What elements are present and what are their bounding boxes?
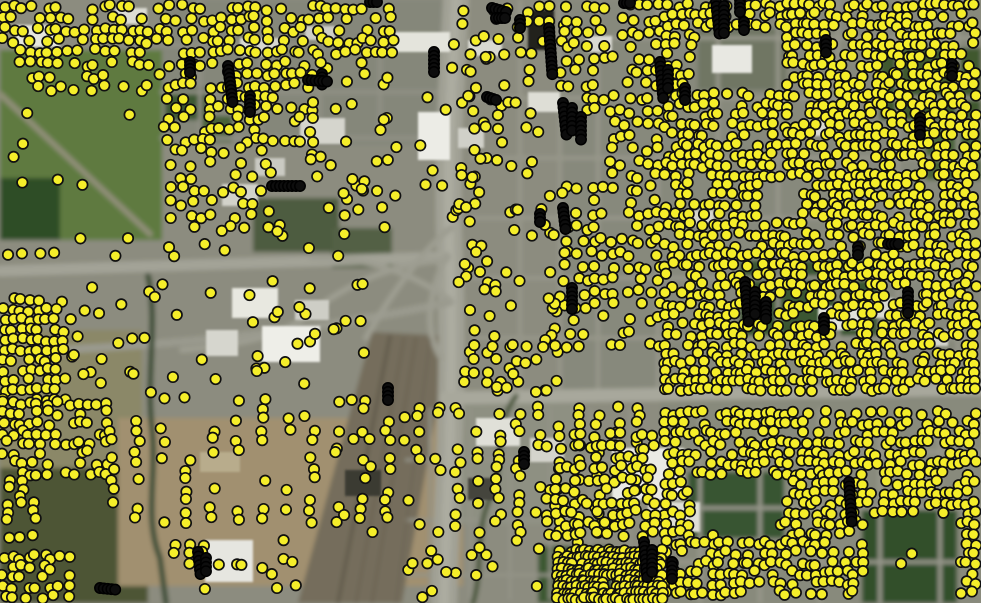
map-marker[interactable] [960,318,970,328]
map-marker[interactable] [101,405,111,415]
map-marker[interactable] [312,171,322,181]
map-marker[interactable] [721,161,731,171]
map-marker[interactable] [917,410,927,420]
map-marker[interactable] [832,149,842,159]
map-marker[interactable] [633,238,643,248]
map-marker[interactable] [685,506,695,516]
map-marker[interactable] [926,10,936,20]
map-marker[interactable] [331,104,341,114]
map-marker[interactable] [649,498,659,508]
map-marker[interactable] [525,108,535,118]
map-marker[interactable] [42,36,52,46]
map-marker[interactable] [667,111,677,121]
map-marker[interactable] [495,436,505,446]
map-marker[interactable] [697,406,707,416]
map-marker[interactable] [917,487,927,497]
map-marker[interactable] [886,435,896,445]
map-marker[interactable] [684,456,694,466]
map-marker[interactable] [781,268,791,278]
map-marker[interactable] [545,267,555,277]
map-marker[interactable] [599,41,609,51]
map-marker[interactable] [124,110,134,120]
map-marker[interactable] [56,81,66,91]
map-marker[interactable] [487,561,497,571]
map-marker[interactable] [562,16,572,26]
map-marker[interactable] [574,341,584,351]
map-marker[interactable] [597,250,607,260]
map-marker[interactable] [86,86,96,96]
map-marker[interactable] [938,12,948,22]
map-marker[interactable] [632,117,642,127]
map-marker[interactable] [499,80,509,90]
map-marker[interactable] [589,54,599,64]
map-marker[interactable] [118,81,128,91]
map-marker[interactable] [223,44,233,54]
map-marker[interactable] [131,426,141,436]
map-marker[interactable] [721,230,731,240]
map-marker[interactable] [358,403,368,413]
map-marker[interactable] [559,259,569,269]
map-marker[interactable] [359,69,369,79]
map-marker[interactable] [923,190,933,200]
map-marker[interactable] [908,80,918,90]
map-marker[interactable] [272,226,282,236]
map-marker[interactable] [690,120,700,130]
map-marker[interactable] [683,340,693,350]
map-marker[interactable] [755,385,765,395]
map-marker[interactable] [315,152,325,162]
map-marker[interactable] [380,425,390,435]
map-marker[interactable] [820,537,830,547]
map-marker[interactable] [497,137,507,147]
map-marker[interactable] [574,440,584,450]
collapsed-marker-stack[interactable] [295,181,305,191]
map-marker[interactable] [795,158,805,168]
map-marker[interactable] [261,59,271,69]
map-marker[interactable] [601,483,611,493]
map-marker[interactable] [686,298,696,308]
map-marker[interactable] [353,204,363,214]
map-marker[interactable] [637,298,647,308]
map-marker[interactable] [207,195,217,205]
map-marker[interactable] [544,1,554,11]
map-marker[interactable] [624,108,634,118]
map-marker[interactable] [247,171,257,181]
map-marker[interactable] [357,184,367,194]
map-marker[interactable] [970,506,980,516]
map-marker[interactable] [554,431,564,441]
map-marker[interactable] [817,141,827,151]
map-marker[interactable] [308,113,318,123]
map-marker[interactable] [433,554,443,564]
map-marker[interactable] [575,429,585,439]
map-marker[interactable] [178,182,188,192]
map-marker[interactable] [427,586,437,596]
map-marker[interactable] [686,40,696,50]
map-marker[interactable] [484,311,494,321]
map-marker[interactable] [142,80,152,90]
map-marker[interactable] [52,58,62,68]
map-marker[interactable] [430,454,440,464]
map-marker[interactable] [727,248,737,258]
map-marker[interactable] [625,314,635,324]
map-marker[interactable] [598,311,608,321]
map-marker[interactable] [69,350,79,360]
map-marker[interactable] [69,469,79,479]
map-marker[interactable] [971,281,981,291]
map-marker[interactable] [810,530,820,540]
collapsed-marker-stack[interactable] [821,47,831,57]
map-marker[interactable] [677,318,687,328]
map-marker[interactable] [15,45,25,55]
map-marker[interactable] [633,30,643,40]
map-marker[interactable] [465,305,475,315]
map-marker[interactable] [390,190,400,200]
map-marker[interactable] [971,238,981,248]
map-marker[interactable] [236,560,246,570]
map-marker[interactable] [835,120,845,130]
map-marker[interactable] [0,33,7,43]
map-marker[interactable] [968,79,978,89]
map-marker[interactable] [433,527,443,537]
map-marker[interactable] [871,249,881,259]
map-marker[interactable] [166,182,176,192]
map-marker[interactable] [106,434,116,444]
map-marker[interactable] [952,268,962,278]
map-marker[interactable] [141,38,151,48]
map-marker[interactable] [109,484,119,494]
map-marker[interactable] [258,412,268,422]
map-marker[interactable] [347,395,357,405]
map-marker[interactable] [971,456,981,466]
map-marker[interactable] [249,22,259,32]
map-marker[interactable] [918,357,928,367]
map-marker[interactable] [845,356,855,366]
map-marker[interactable] [738,108,748,118]
map-marker[interactable] [968,0,978,10]
map-marker[interactable] [480,121,490,131]
map-marker[interactable] [768,426,778,436]
map-marker[interactable] [378,37,388,47]
map-marker[interactable] [588,80,598,90]
map-marker[interactable] [697,220,707,230]
map-marker[interactable] [624,264,634,274]
collapsed-marker-stack[interactable] [853,250,863,260]
map-marker[interactable] [31,513,41,523]
collapsed-marker-stack[interactable] [663,83,673,93]
map-marker[interactable] [487,341,497,351]
map-marker[interactable] [471,570,481,580]
map-marker[interactable] [750,201,760,211]
map-marker[interactable] [490,516,500,526]
map-marker[interactable] [386,12,396,22]
map-marker[interactable] [642,93,652,103]
map-marker[interactable] [27,457,37,467]
map-marker[interactable] [494,493,504,503]
map-marker[interactable] [908,1,918,11]
map-marker[interactable] [207,58,217,68]
map-marker[interactable] [65,552,75,562]
map-marker[interactable] [939,331,949,341]
map-marker[interactable] [682,486,692,496]
map-marker[interactable] [340,316,350,326]
map-marker[interactable] [234,445,244,455]
map-marker[interactable] [473,476,483,486]
map-marker[interactable] [570,475,580,485]
map-marker[interactable] [586,246,596,256]
map-marker[interactable] [160,437,170,447]
map-marker[interactable] [236,187,246,197]
map-marker[interactable] [179,112,189,122]
map-marker[interactable] [377,47,387,57]
map-marker[interactable] [98,70,108,80]
map-marker[interactable] [347,99,357,109]
map-marker[interactable] [531,354,541,364]
map-marker[interactable] [131,457,141,467]
map-marker[interactable] [538,342,548,352]
map-marker[interactable] [862,497,872,507]
map-marker[interactable] [260,476,270,486]
map-marker[interactable] [924,318,934,328]
map-marker[interactable] [588,65,598,75]
map-marker[interactable] [259,112,269,122]
map-marker[interactable] [455,493,465,503]
map-marker[interactable] [260,394,270,404]
map-marker[interactable] [4,533,14,543]
map-marker[interactable] [128,369,138,379]
map-marker[interactable] [50,2,60,12]
map-marker[interactable] [615,441,625,451]
map-marker[interactable] [268,136,278,146]
map-marker[interactable] [731,200,741,210]
map-marker[interactable] [854,188,864,198]
map-marker[interactable] [599,95,609,105]
map-marker[interactable] [14,532,24,542]
map-marker[interactable] [629,485,639,495]
map-marker[interactable] [82,445,92,455]
collapsed-marker-stack[interactable] [567,304,577,314]
map-marker[interactable] [652,142,662,152]
collapsed-marker-stack[interactable] [322,76,332,86]
map-marker[interactable] [833,566,843,576]
map-marker[interactable] [52,47,62,57]
map-marker[interactable] [489,331,499,341]
map-marker[interactable] [105,0,115,10]
map-marker[interactable] [923,212,933,222]
map-marker[interactable] [825,158,835,168]
collapsed-marker-stack[interactable] [947,71,957,81]
map-marker[interactable] [24,354,34,364]
map-marker[interactable] [492,155,502,165]
map-marker[interactable] [720,546,730,556]
collapsed-marker-stack[interactable] [625,0,635,8]
map-marker[interactable] [772,469,782,479]
map-marker[interactable] [836,99,846,109]
map-marker[interactable] [133,474,143,484]
map-marker[interactable] [16,3,26,13]
map-marker[interactable] [817,548,827,558]
map-marker[interactable] [592,527,602,537]
map-marker[interactable] [907,548,917,558]
map-marker[interactable] [596,208,606,218]
map-marker[interactable] [832,218,842,228]
collapsed-marker-stack[interactable] [185,67,195,77]
map-marker[interactable] [234,122,244,132]
map-marker[interactable] [15,294,25,304]
map-marker[interactable] [847,28,857,38]
map-marker[interactable] [569,487,579,497]
map-marker[interactable] [712,329,722,339]
map-marker[interactable] [970,559,980,569]
map-marker[interactable] [572,17,582,27]
map-marker[interactable] [892,180,902,190]
map-marker[interactable] [712,108,722,118]
map-marker[interactable] [626,474,636,484]
map-marker[interactable] [670,437,680,447]
map-marker[interactable] [827,556,837,566]
map-marker[interactable] [754,576,764,586]
map-marker[interactable] [884,77,894,87]
map-marker[interactable] [647,431,657,441]
map-marker[interactable] [847,417,857,427]
map-marker[interactable] [789,91,799,101]
map-marker[interactable] [706,446,716,456]
map-marker[interactable] [162,94,172,104]
map-marker[interactable] [514,426,524,436]
map-marker[interactable] [108,497,118,507]
map-marker[interactable] [29,583,39,593]
map-marker[interactable] [659,209,669,219]
map-marker[interactable] [246,209,256,219]
map-marker[interactable] [252,351,262,361]
map-marker[interactable] [14,409,24,419]
map-marker[interactable] [513,32,523,42]
map-marker[interactable] [469,368,479,378]
map-marker[interactable] [648,526,658,536]
map-marker[interactable] [388,35,398,45]
map-marker[interactable] [310,329,320,339]
map-marker[interactable] [366,461,376,471]
map-marker[interactable] [356,58,366,68]
map-marker[interactable] [379,114,389,124]
map-marker[interactable] [597,462,607,472]
map-marker[interactable] [802,438,812,448]
map-marker[interactable] [605,428,615,438]
map-marker[interactable] [278,535,288,545]
map-marker[interactable] [463,91,473,101]
map-marker[interactable] [493,110,503,120]
map-marker[interactable] [350,44,360,54]
map-marker[interactable] [641,77,651,87]
map-marker[interactable] [782,109,792,119]
map-marker[interactable] [765,270,775,280]
map-marker[interactable] [157,453,167,463]
map-marker[interactable] [879,291,889,301]
map-marker[interactable] [811,495,821,505]
map-marker[interactable] [660,287,670,297]
map-marker[interactable] [51,353,61,363]
map-marker[interactable] [877,328,887,338]
map-marker[interactable] [391,142,401,152]
map-marker[interactable] [766,148,776,158]
map-marker[interactable] [387,47,397,57]
map-marker[interactable] [968,38,978,48]
map-marker[interactable] [491,462,501,472]
map-marker[interactable] [817,199,827,209]
map-marker[interactable] [220,245,230,255]
map-marker[interactable] [18,26,28,36]
map-marker[interactable] [795,8,805,18]
map-marker[interactable] [64,591,74,601]
map-marker[interactable] [669,309,679,319]
map-marker[interactable] [910,497,920,507]
map-marker[interactable] [631,67,641,77]
map-marker[interactable] [579,290,589,300]
map-marker[interactable] [685,218,695,228]
map-marker[interactable] [821,89,831,99]
map-marker[interactable] [866,308,876,318]
map-marker[interactable] [437,180,447,190]
map-marker[interactable] [330,447,340,457]
map-marker[interactable] [21,593,31,603]
map-marker[interactable] [920,376,930,386]
map-marker[interactable] [146,387,156,397]
map-marker[interactable] [589,103,599,113]
map-marker[interactable] [589,261,599,271]
map-marker[interactable] [901,437,911,447]
map-marker[interactable] [294,112,304,122]
collapsed-marker-stack[interactable] [739,25,749,35]
map-marker[interactable] [151,34,161,44]
map-marker[interactable] [208,433,218,443]
map-marker[interactable] [684,69,694,79]
map-marker[interactable] [572,27,582,37]
map-marker[interactable] [215,22,225,32]
map-marker[interactable] [728,558,738,568]
collapsed-marker-stack[interactable] [847,516,857,526]
map-marker[interactable] [923,436,933,446]
map-marker[interactable] [802,239,812,249]
map-marker[interactable] [385,453,395,463]
map-marker[interactable] [588,183,598,193]
map-marker[interactable] [200,239,210,249]
map-marker[interactable] [399,435,409,445]
map-marker[interactable] [492,382,502,392]
map-marker[interactable] [168,372,178,382]
map-marker[interactable] [625,93,635,103]
map-marker[interactable] [0,418,9,428]
map-marker[interactable] [87,4,97,14]
map-marker[interactable] [926,48,936,58]
map-marker[interactable] [217,226,227,236]
map-marker[interactable] [613,402,623,412]
map-marker[interactable] [177,0,187,10]
map-marker[interactable] [257,435,267,445]
map-marker[interactable] [575,461,585,471]
map-marker[interactable] [252,68,262,78]
map-marker[interactable] [185,455,195,465]
map-marker[interactable] [699,537,709,547]
map-marker[interactable] [172,310,182,320]
map-marker[interactable] [534,16,544,26]
map-marker[interactable] [607,168,617,178]
map-marker[interactable] [969,476,979,486]
map-marker[interactable] [170,122,180,132]
map-marker[interactable] [752,179,762,189]
map-marker[interactable] [533,127,543,137]
map-marker[interactable] [329,324,339,334]
map-marker[interactable] [450,509,460,519]
